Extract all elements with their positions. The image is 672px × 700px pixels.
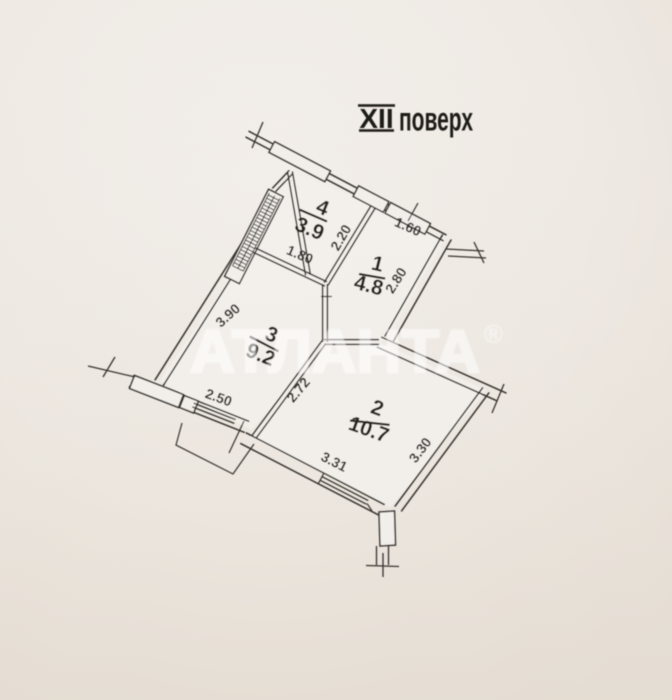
svg-text:поверх: поверх [399, 101, 473, 138]
svg-text:®: ® [484, 319, 503, 349]
svg-text:АТЛАНТА: АТЛАНТА [190, 318, 480, 385]
